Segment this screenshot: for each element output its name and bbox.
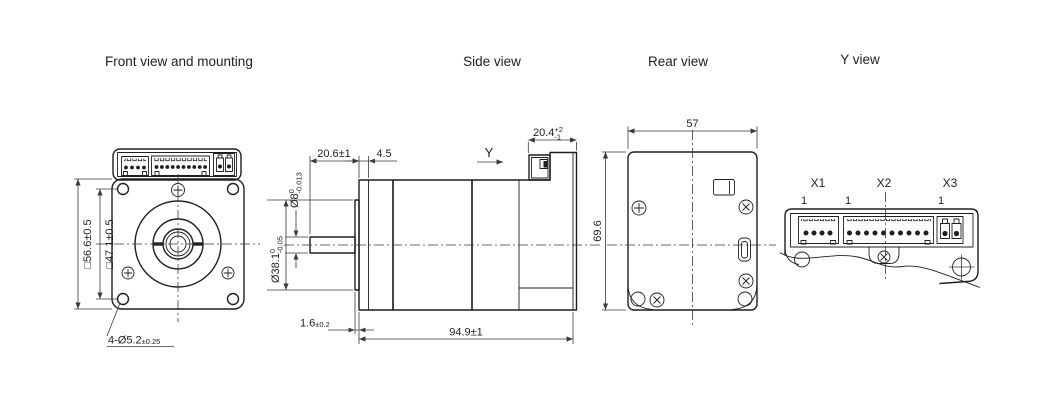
y-connector-x2 [844,217,934,245]
front-connector-housing [113,149,241,180]
dim-mounting-holes-text: 4-Ø5.2±0.25 [108,335,160,347]
dim-rear-width-text: 57 [686,118,698,130]
side-top-connector [529,155,550,180]
y-connector-x1 [799,217,839,245]
view-direction-arrow: Y [477,145,503,162]
view-direction-label: Y [485,145,494,160]
side-view-title: Side view [463,54,521,69]
rear-view-title: Rear view [648,54,708,69]
y-view-title: Y view [840,52,880,67]
label-x1: X1 [811,176,826,190]
dim-pilot-dia-text: Ø38.10-0.05 [268,236,285,283]
pin1-marker-x1: 1 [801,195,807,207]
y-bottom-breakout [780,248,980,288]
y-body-inner [791,214,974,248]
dim-boss-offset: 4.5 [345,148,397,178]
rear-view: Rear view [592,54,776,328]
pin1-marker-x2: 1 [845,195,851,207]
dim-rear-height: 69.6 [592,152,626,310]
rear-switch [714,180,735,196]
front-connector-x3 [214,154,235,176]
y-connector-x3 [937,217,963,244]
dim-connector-depth: 20.4+2-1 [528,125,576,153]
front-view-title: Front view and mounting [105,54,253,69]
side-view: Side view 20.6±1 [267,54,600,344]
dim-outer-square-text: □56.6±0.5 [82,219,94,268]
pin1-marker-x3: 1 [938,195,944,207]
dim-connector-depth-text: 20.4+2-1 [533,125,563,142]
dim-rear-height-text: 69.6 [592,220,604,241]
y-view: Y view [780,52,980,288]
y-connector-labels: X1 X2 X3 1 1 1 [801,176,958,207]
rear-slot-connector [739,238,751,261]
front-connector-x1 [122,157,149,176]
dim-total-length: 94.9±1 [359,312,573,344]
dim-bolt-square-text: □47.1±0.5 [104,219,116,268]
motor-dimension-drawing: Front view and mounting [0,0,1050,411]
front-view: Front view and mounting [74,54,260,347]
label-x2: X2 [877,176,892,190]
side-body [310,153,577,311]
dim-boss-offset-text: 4.5 [376,148,391,160]
dim-shaft-dia-text: Ø80-0.013 [287,172,304,208]
label-x3: X3 [943,176,958,190]
dim-pilot-thickness: 1.6±0.2 [300,292,374,344]
front-connector-x2 [152,156,210,176]
dim-pilot-thickness-text: 1.6±0.2 [300,318,330,330]
dim-shaft-length-text: 20.6±1 [317,148,351,160]
technical-drawing-canvas: Front view and mounting [0,0,1050,411]
dim-shaft-dia: Ø80-0.013 [285,172,308,268]
rear-housing [472,153,577,311]
dim-total-length-text: 94.9±1 [449,327,483,339]
